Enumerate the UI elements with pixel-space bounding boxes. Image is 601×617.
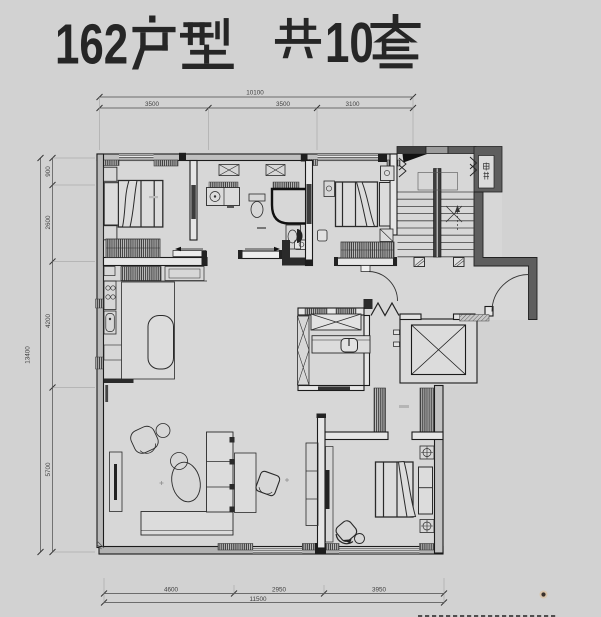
svg-text:5700: 5700 xyxy=(45,462,52,477)
svg-text:4600: 4600 xyxy=(164,587,179,594)
svg-text:10: 10 xyxy=(325,10,374,74)
svg-text:162: 162 xyxy=(55,12,128,76)
svg-text:2950: 2950 xyxy=(272,587,287,594)
svg-text:3500: 3500 xyxy=(145,101,160,108)
svg-text:10100: 10100 xyxy=(246,90,264,97)
svg-text:3950: 3950 xyxy=(372,587,387,594)
svg-text:900: 900 xyxy=(45,166,52,177)
svg-text:4200: 4200 xyxy=(45,314,52,329)
svg-text:11500: 11500 xyxy=(249,596,267,603)
svg-text:3500: 3500 xyxy=(276,101,291,108)
svg-text:2600: 2600 xyxy=(45,215,52,230)
svg-text:13400: 13400 xyxy=(25,346,32,364)
svg-text:3100: 3100 xyxy=(345,101,360,108)
